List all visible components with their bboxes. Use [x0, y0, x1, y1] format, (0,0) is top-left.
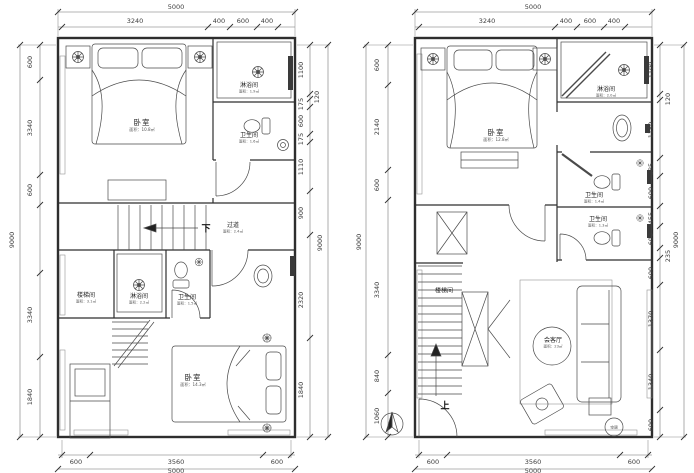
living-room-right-plan [419, 280, 623, 437]
room-label-bedroom-top: 卧室 面积：10.8㎡ [123, 119, 160, 135]
dim-label: 600 [648, 419, 655, 431]
dim-label: 1060 [374, 408, 381, 425]
room-label-shower-top: 淋浴间 面积：1.9㎡ [232, 83, 266, 97]
stairs-right-plan [418, 266, 510, 396]
room-area: 面积：10.8㎡ [129, 128, 154, 133]
dim-label: 1840 [298, 382, 305, 399]
floorplan-canvas: 5000 3240 400 600 400 9000 600 3340 600 … [0, 0, 694, 473]
room-label-bath2-right: 卫生间 面积：1.3㎡ [581, 217, 615, 231]
room-area: 面积：1.9㎡ [239, 90, 259, 94]
room-area: 面积：2.4㎡ [223, 230, 243, 234]
dim-label: 600 [374, 179, 381, 191]
stairs-up-label: 上 [440, 399, 449, 412]
room-name: 楼梯间 [435, 289, 453, 296]
room-label-bath-mid: 卫生间 面积：1.5㎡ [170, 295, 204, 309]
dim-label: 600 [27, 56, 34, 68]
room-area: 面积：1.6㎡ [239, 140, 259, 144]
dim-label: 9000 [317, 235, 324, 252]
room-label-bath1-right: 卫生间 面积：1.4㎡ [577, 193, 611, 207]
dim-label: 840 [374, 370, 381, 382]
dim-label: 235 [665, 250, 672, 262]
dim-label: 1150 [648, 122, 655, 139]
room-label-stairwell-right: 楼梯间 [435, 289, 453, 296]
room-area: 面积：3.1㎡ [76, 300, 96, 304]
dim-label: 400 [261, 18, 273, 25]
dim-label: 3240 [479, 18, 496, 25]
dim-label: 9000 [9, 232, 16, 249]
dim-label: 3340 [27, 120, 34, 137]
dim-label: 1370 [648, 311, 655, 328]
north-compass-icon [381, 412, 403, 435]
dim-label: 1110 [298, 159, 305, 176]
room-area: 面积：12.8㎡ [483, 138, 508, 143]
stairs-down-label: 下 [201, 222, 210, 235]
dim-label: 1100 [298, 62, 305, 79]
room-label-stairwell: 楼梯间 面积：3.1㎡ [69, 293, 103, 307]
dim-label: 5000 [168, 4, 185, 11]
dim-label: 600 [648, 187, 655, 199]
dim-label: 400 [608, 18, 620, 25]
dim-label: 175 [298, 133, 305, 145]
dim-label: 455 [648, 212, 655, 224]
dim-label: 1100 [648, 62, 655, 79]
dim-label: 600 [584, 18, 596, 25]
dim-label: 9000 [673, 232, 680, 249]
dim-label: 600 [628, 459, 640, 466]
dim-label: 175 [298, 98, 305, 110]
dim-label: 385 [648, 163, 655, 175]
mid-stairs-left-plan [112, 320, 154, 368]
dim-label: 120 [314, 91, 321, 103]
room-area: 面积：14.3㎡ [180, 383, 205, 388]
room-area: 面积：1.4㎡ [584, 200, 604, 204]
bed-top-right [421, 46, 557, 168]
dim-label: 3240 [127, 18, 144, 25]
dim-label: 5000 [525, 4, 542, 11]
dim-label: 5000 [168, 468, 185, 473]
dim-label: 3560 [168, 459, 185, 466]
room-area: 面积：2.2㎡ [129, 301, 149, 305]
dim-label: 1840 [27, 389, 34, 406]
room-label-bedroom-bottom: 卧室 面积：14.3㎡ [174, 374, 211, 390]
hall-right-plan [437, 205, 545, 254]
dim-label: 400 [560, 18, 572, 25]
floorplan-linework [0, 0, 694, 473]
room-label-shower-right: 淋浴间 面积：2.0㎡ [589, 87, 623, 101]
room-area: 面积：1.3㎡ [588, 224, 608, 228]
ac-label: 空调 [610, 424, 617, 429]
dim-label: 600 [648, 267, 655, 279]
dim-label: 600 [27, 184, 34, 196]
dim-label: 900 [298, 207, 305, 219]
dim-label: 600 [237, 18, 249, 25]
dim-label: 9000 [356, 234, 363, 251]
dim-label: 600 [374, 59, 381, 71]
dim-label: 400 [213, 18, 225, 25]
dim-label: 3340 [27, 307, 34, 324]
dim-label: 120 [665, 93, 672, 105]
room-area: 面积：23㎡ [544, 345, 563, 349]
bath-top-left-plan [216, 118, 289, 196]
room-label-corridor: 过道 面积：2.4㎡ [216, 223, 250, 237]
dim-label: 2320 [298, 292, 305, 309]
dim-label: 5000 [525, 468, 542, 473]
room-label-living: 会客厅 面积：23㎡ [537, 338, 569, 352]
dim-label: 600 [648, 233, 655, 245]
dim-label: 600 [427, 459, 439, 466]
room-area: 面积：1.5㎡ [177, 302, 197, 306]
room-label-shower-mid: 淋浴间 面积：2.2㎡ [122, 294, 156, 308]
room-label-bedroom-right: 卧室 面积：12.8㎡ [477, 129, 514, 145]
dim-label: 1340 [648, 374, 655, 391]
dim-label: 3560 [525, 459, 542, 466]
dim-label: 3340 [374, 282, 381, 299]
room-area: 面积：2.0㎡ [596, 94, 616, 98]
dim-label: 600 [271, 459, 283, 466]
dim-label: 600 [70, 459, 82, 466]
dim-label: 600 [298, 115, 305, 127]
room-label-bath-top: 卫生间 面积：1.6㎡ [232, 133, 266, 147]
corridor-stairs [118, 205, 206, 250]
dim-label: 2140 [374, 119, 381, 136]
